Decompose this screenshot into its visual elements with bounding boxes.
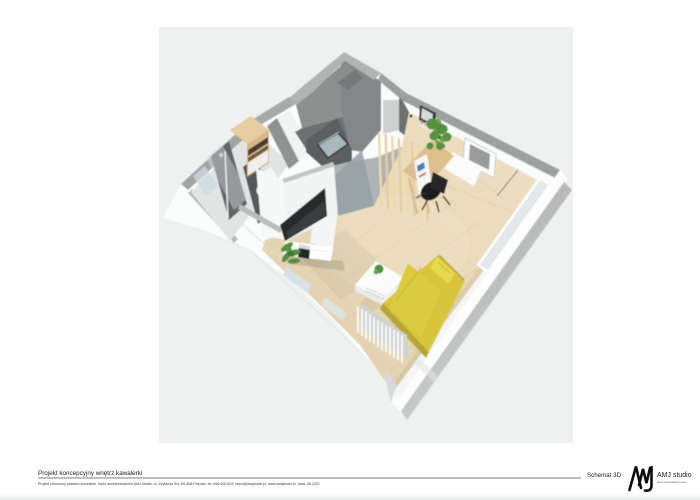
svg-text:Projekt koncepcyjny wnętrz kaw: Projekt koncepcyjny wnętrz kawalerki xyxy=(38,470,142,477)
svg-text:Schemat 3D: Schemat 3D xyxy=(587,472,622,479)
svg-text:biuro architektoniczne: biuro architektoniczne xyxy=(657,480,687,484)
svg-text:Projekt chroniony prawem autor: Projekt chroniony prawem autorskim, biur… xyxy=(38,482,320,486)
svg-text:AMJ studio: AMJ studio xyxy=(657,472,692,479)
